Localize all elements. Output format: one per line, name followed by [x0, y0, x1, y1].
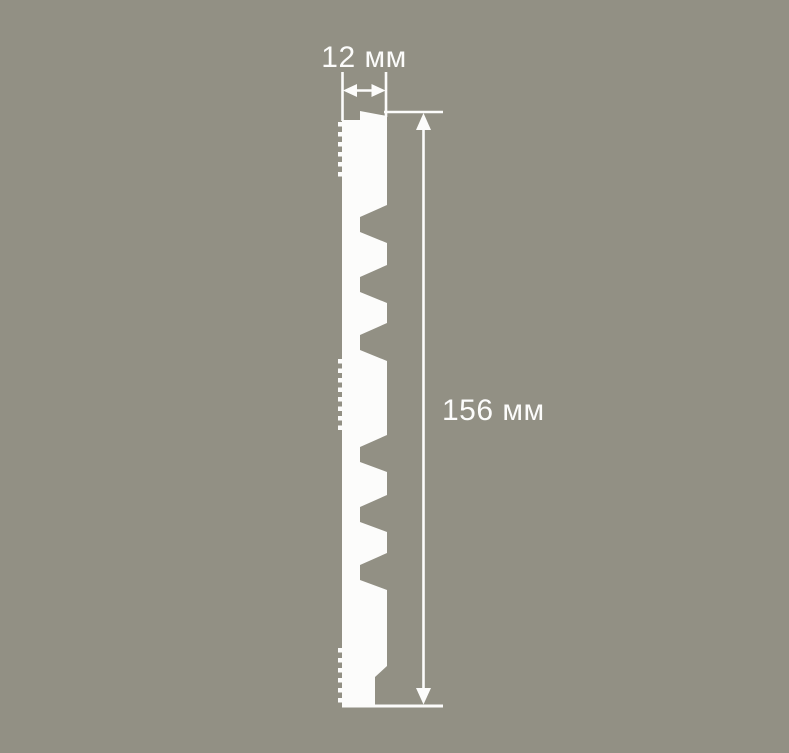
technical-drawing-canvas: 12 мм 156 мм [0, 0, 789, 753]
width-dimension-label: 12 мм [321, 41, 406, 74]
panel-profile-drawing: 12 мм 156 мм [0, 0, 789, 753]
profile-shape [338, 111, 387, 705]
height-dimension-label: 156 мм [442, 394, 545, 427]
profile-outline [342, 111, 387, 705]
